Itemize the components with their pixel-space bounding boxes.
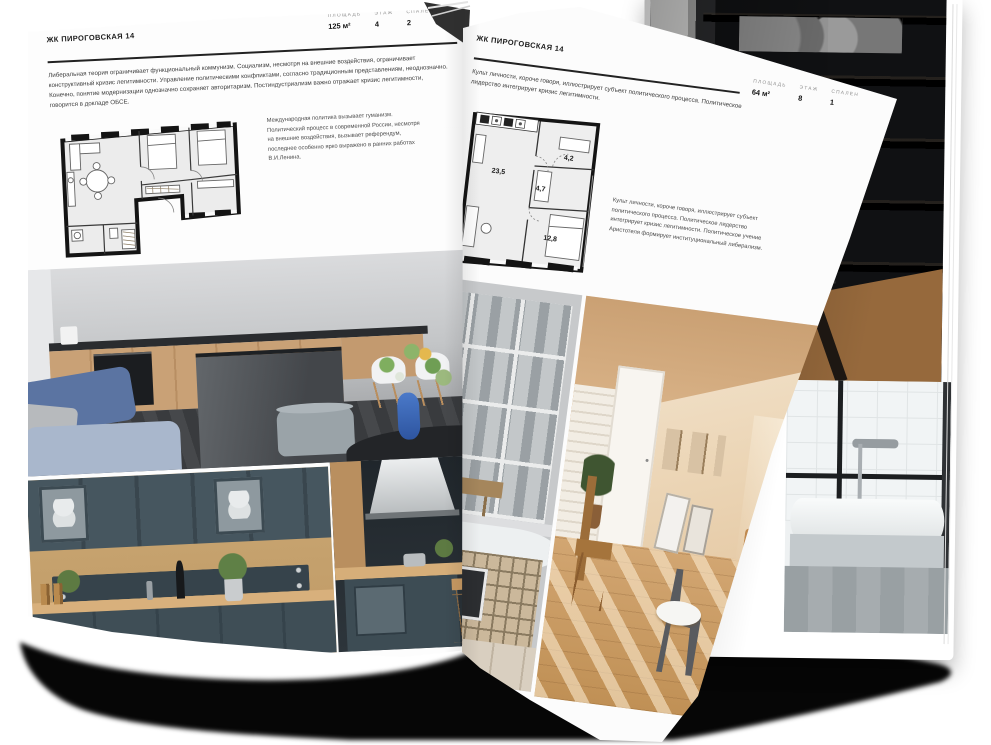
left-page-paragraph: Либеральная теория ограничивает функцион… xyxy=(48,52,449,111)
page-edge-line xyxy=(948,4,958,644)
cooking-pot xyxy=(403,553,425,567)
right-plan-caption: Культ личности, короче говоря, иллюстрир… xyxy=(608,196,770,254)
area-label-bath: 4,2 xyxy=(563,155,574,163)
door-knob xyxy=(645,458,648,461)
wood-wall xyxy=(330,461,366,580)
glass-cabinet xyxy=(39,485,90,543)
blue-vase xyxy=(397,392,421,440)
right-page-title: ЖК ПИРОГОВСКАЯ 14 xyxy=(476,33,565,53)
left-page-content: ЖК ПИРОГОВСКАЯ 14 ПЛОЩАДЬ 125 м² ЭТАЖ 4 … xyxy=(30,8,494,656)
shower-pipe xyxy=(858,444,863,499)
stat-bedrooms: СПАЛЕН 2 xyxy=(406,9,435,27)
left-page-title: ЖК ПИРОГОВСКАЯ 14 xyxy=(46,31,134,44)
floor-plan-125m2 xyxy=(57,118,245,258)
photo-grey-kitchen-living xyxy=(16,248,511,477)
stat-floor: ЭТАЖ 8 xyxy=(798,85,819,104)
glass-cabinet xyxy=(214,477,265,535)
spice-jars xyxy=(40,583,65,605)
kettle xyxy=(60,326,78,345)
photo-teal-kitchen-cabinets xyxy=(26,466,336,666)
left-plan-caption: Международная политика вызывает гуманизм… xyxy=(266,110,426,165)
stat-area: ПЛОЩАДЬ 64 м² xyxy=(751,79,787,100)
left-page-stats: ПЛОЩАДЬ 125 м² ЭТАЖ 4 СПАЛЕН 2 xyxy=(328,9,435,31)
right-page-stats: ПЛОЩАДЬ 64 м² ЭТАЖ 8 СПАЛЕН 1 xyxy=(751,79,859,110)
dishes xyxy=(224,490,255,519)
area-label-hall: 4,7 xyxy=(535,185,546,193)
stat-floor: ЭТАЖ 4 xyxy=(374,11,394,29)
grey-pouf xyxy=(276,406,356,457)
island-glass-panel xyxy=(354,584,407,636)
sofa-seat xyxy=(24,420,182,477)
stat-bedrooms: СПАЛЕН 1 xyxy=(829,90,859,110)
dishes xyxy=(49,499,80,528)
extractor-hood xyxy=(366,457,456,518)
plant-pail xyxy=(224,578,243,601)
brochure-mockup-canvas: { "brochure": { "left_page": { "header":… xyxy=(0,0,991,740)
wine-bottle xyxy=(175,561,185,599)
stat-area: ПЛОЩАДЬ 125 м² xyxy=(328,12,362,31)
faucet xyxy=(146,581,153,600)
left-page: ЖК ПИРОГОВСКАЯ 14 ПЛОЩАДЬ 125 м² ЭТАЖ 4 … xyxy=(22,2,470,670)
wall-frames xyxy=(661,428,726,476)
